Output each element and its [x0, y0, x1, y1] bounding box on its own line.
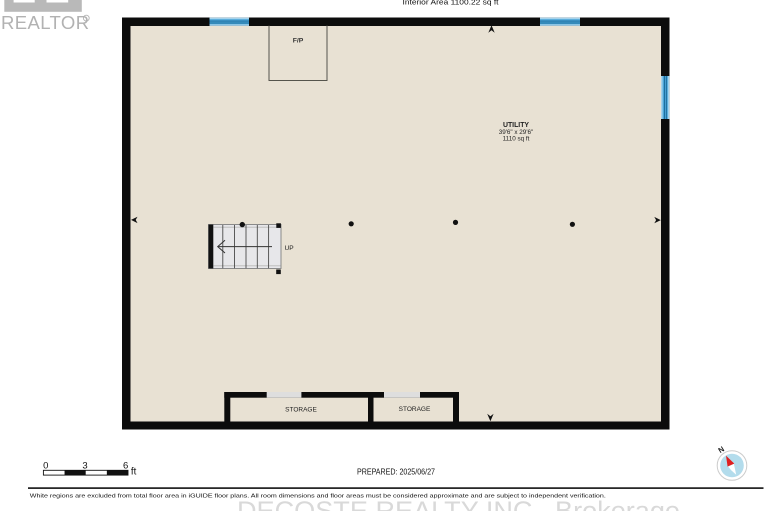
svg-text:Interior Area 1100.22 sq ft: Interior Area 1100.22 sq ft: [403, 0, 500, 7]
svg-text:STORAGE: STORAGE: [285, 407, 317, 414]
svg-text:STORAGE: STORAGE: [399, 406, 431, 413]
svg-text:F/P: F/P: [293, 37, 304, 44]
svg-text:6: 6: [123, 460, 128, 471]
svg-text:DECOSTE REALTY INC., Brokerage: DECOSTE REALTY INC., Brokerage: [237, 496, 680, 511]
svg-text:UP: UP: [285, 245, 295, 252]
svg-text:ft: ft: [131, 466, 137, 477]
svg-text:1110 sq ft: 1110 sq ft: [503, 135, 530, 142]
svg-text:3: 3: [82, 460, 87, 471]
svg-text:REALTOR: REALTOR: [1, 12, 89, 33]
svg-text:PREPARED: 2025/06/27: PREPARED: 2025/06/27: [357, 467, 435, 476]
svg-text:0: 0: [43, 460, 48, 471]
